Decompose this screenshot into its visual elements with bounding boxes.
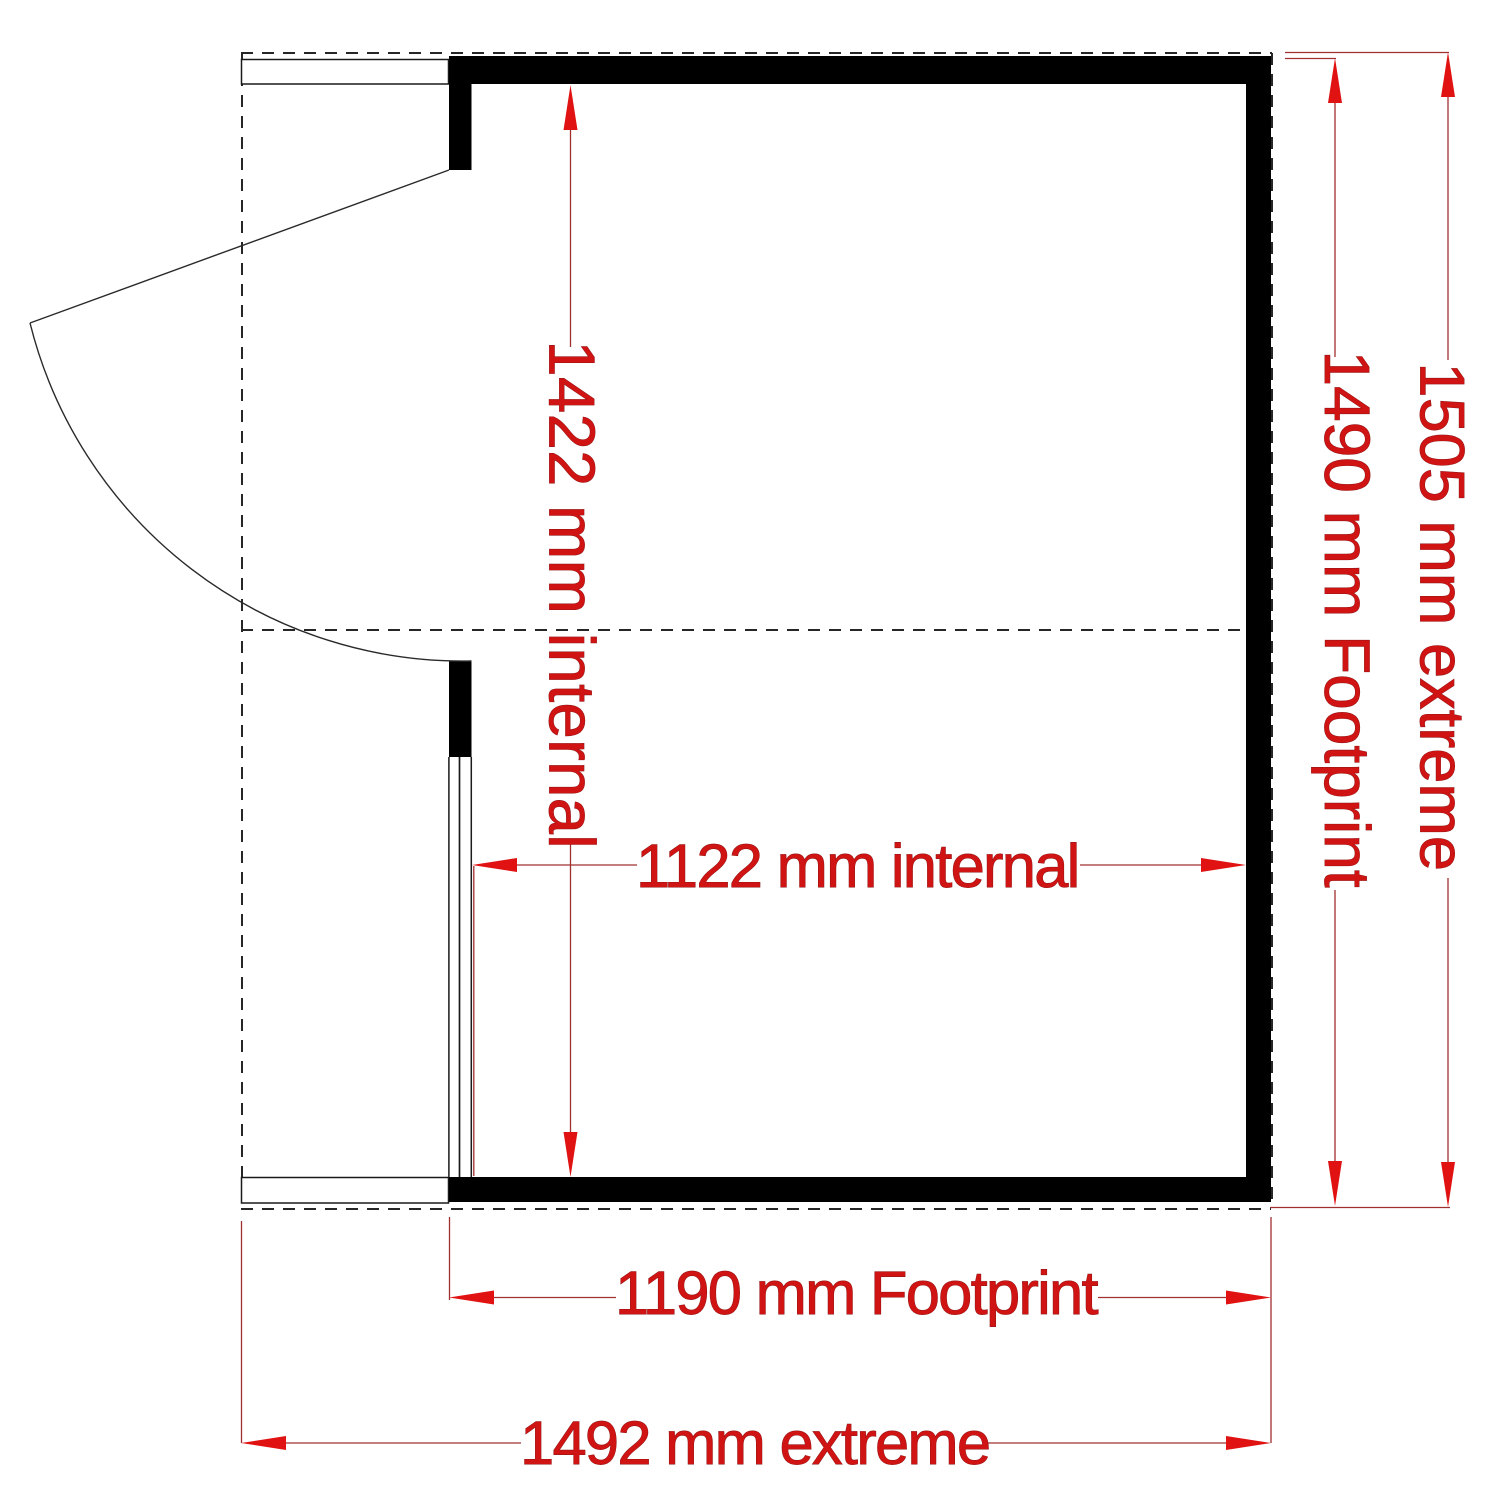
svg-text:1122 mm internal: 1122 mm internal — [636, 832, 1079, 901]
svg-text:1422 mm internal: 1422 mm internal — [536, 341, 609, 850]
svg-text:1490 mm Footprint: 1490 mm Footprint — [1311, 351, 1383, 888]
svg-text:1190 mm Footprint: 1190 mm Footprint — [615, 1259, 1098, 1328]
svg-text:1505 mm extreme: 1505 mm extreme — [1407, 363, 1477, 871]
svg-text:1492 mm extreme: 1492 mm extreme — [520, 1409, 989, 1478]
